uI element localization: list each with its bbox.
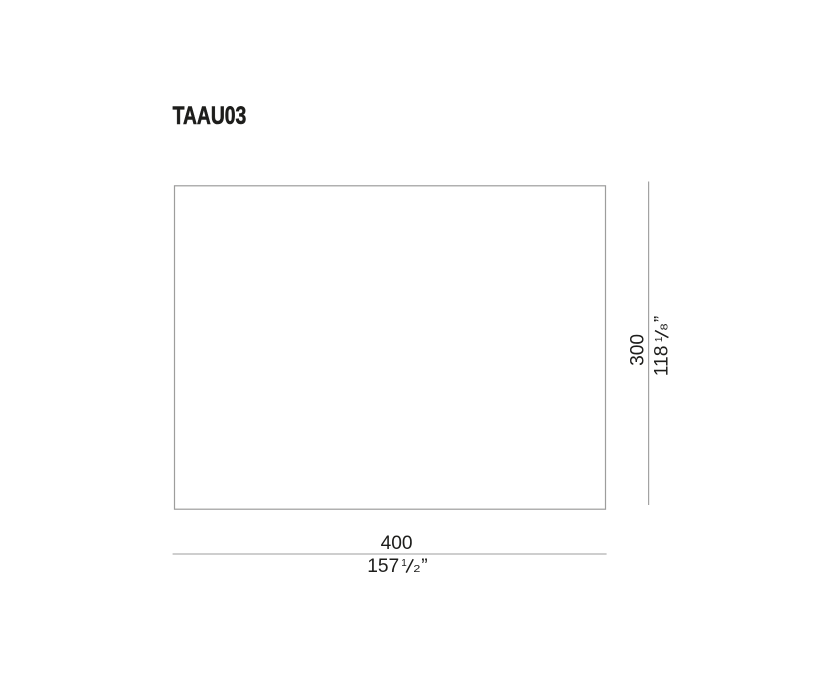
svg-text:2: 2 — [413, 564, 420, 575]
svg-text:400: 400 — [381, 533, 413, 554]
svg-text:”: ” — [421, 556, 427, 577]
svg-text:300: 300 — [628, 334, 649, 366]
svg-text:118: 118 — [652, 346, 673, 377]
svg-text:8: 8 — [660, 323, 671, 330]
svg-text:TAAU03: TAAU03 — [173, 102, 247, 130]
svg-text:1: 1 — [401, 558, 407, 569]
svg-text:”: ” — [652, 316, 673, 322]
svg-text:1: 1 — [654, 336, 665, 342]
svg-text:157: 157 — [367, 556, 399, 577]
